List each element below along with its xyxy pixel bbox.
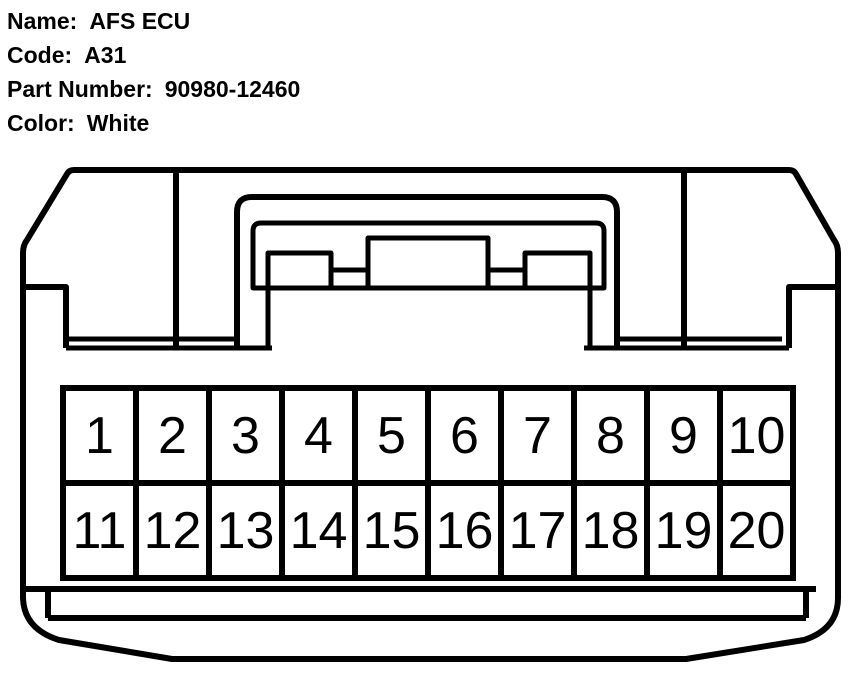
pin-cell-11: 11 <box>63 483 136 578</box>
pin-number: 11 <box>73 505 127 557</box>
latch-center-tab <box>368 238 488 288</box>
pin-number: 4 <box>304 410 333 462</box>
pin-number: 18 <box>582 505 640 557</box>
right-shelf-step <box>789 287 836 348</box>
left-shelf-step <box>25 287 66 348</box>
pin-cell-17: 17 <box>501 483 574 578</box>
pin-cell-7: 7 <box>501 388 574 483</box>
pin-number: 14 <box>290 505 348 557</box>
pin-cell-20: 20 <box>720 483 793 578</box>
pin-number: 19 <box>655 505 713 557</box>
pin-cell-16: 16 <box>428 483 501 578</box>
pin-number: 3 <box>231 410 260 462</box>
pin-cell-15: 15 <box>355 483 428 578</box>
pin-grid: 12345678910 11121314151617181920 <box>60 385 796 581</box>
pin-cell-14: 14 <box>282 483 355 578</box>
pin-number: 20 <box>728 505 786 557</box>
latch-right-tab <box>525 253 590 288</box>
pin-cell-10: 10 <box>720 388 793 483</box>
pin-number: 12 <box>144 505 202 557</box>
pin-number: 8 <box>596 410 625 462</box>
pin-cell-3: 3 <box>209 388 282 483</box>
pin-number: 7 <box>523 410 552 462</box>
pin-cell-18: 18 <box>574 483 647 578</box>
pin-cell-13: 13 <box>209 483 282 578</box>
pin-number: 2 <box>158 410 187 462</box>
pin-number: 1 <box>85 410 114 462</box>
connector-pinout-diagram: Name:AFS ECU Code:A31 Part Number:90980-… <box>0 0 864 678</box>
pin-number: 6 <box>450 410 479 462</box>
pin-cell-8: 8 <box>574 388 647 483</box>
pin-cell-4: 4 <box>282 388 355 483</box>
pin-number: 16 <box>436 505 494 557</box>
pin-cell-5: 5 <box>355 388 428 483</box>
pin-cell-19: 19 <box>647 483 720 578</box>
pin-number: 10 <box>728 410 786 462</box>
pin-row-bottom: 11121314151617181920 <box>63 483 793 578</box>
latch-outer-frame <box>237 197 617 348</box>
pin-number: 13 <box>217 505 275 557</box>
pin-cell-9: 9 <box>647 388 720 483</box>
latch-left-tab <box>268 253 331 288</box>
pin-number: 15 <box>363 505 421 557</box>
pin-cell-12: 12 <box>136 483 209 578</box>
pin-row-top: 12345678910 <box>63 388 793 483</box>
pin-cell-2: 2 <box>136 388 209 483</box>
pin-number: 9 <box>669 410 698 462</box>
pin-number: 5 <box>377 410 406 462</box>
pin-cell-1: 1 <box>63 388 136 483</box>
pin-cell-6: 6 <box>428 388 501 483</box>
pin-number: 17 <box>509 505 567 557</box>
